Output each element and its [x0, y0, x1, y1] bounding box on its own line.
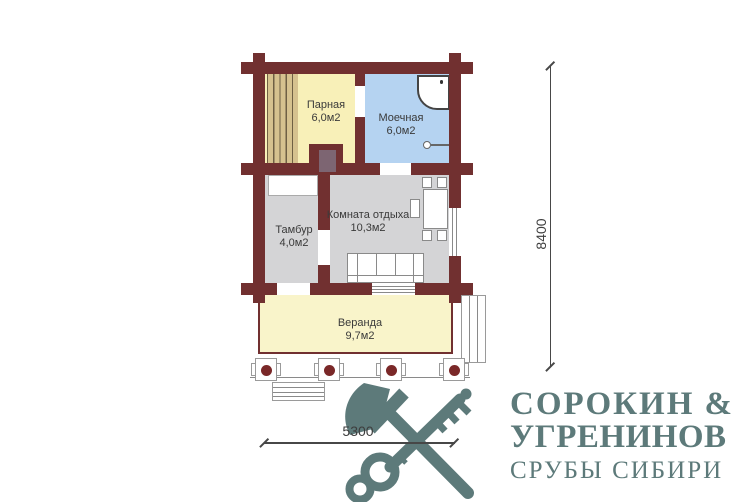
logo-tagline: СРУБЫ СИБИРИ [510, 458, 734, 483]
dimension-label-horizontal: 5300 [328, 423, 388, 439]
chair [437, 230, 447, 241]
faucet-icon [423, 141, 431, 149]
chair [422, 177, 432, 188]
logo-text-block: СОРОКИН & УГРЕНИНОВ СРУБЫ СИБИРИ [510, 389, 734, 483]
logo-name-part1: СОРОКИН [510, 389, 694, 419]
wall-left [253, 53, 265, 303]
door-rest-washing [380, 163, 411, 175]
dimension-label-vertical: 8400 [533, 205, 549, 263]
dimension-line-vertical [550, 65, 552, 367]
chair [422, 230, 432, 241]
window-rest-veranda [372, 283, 415, 295]
room-label-rest: Комната отдыха 10,3м2 [318, 209, 418, 235]
vestibule-bench [268, 175, 318, 196]
room-area: 6,0м2 [286, 112, 366, 125]
door-vestibule-veranda [277, 283, 310, 295]
logo-name-line1: СОРОКИН & [510, 389, 734, 419]
wall-top [241, 62, 473, 74]
faucet-pipe [431, 144, 449, 146]
shower-head-icon [440, 80, 444, 84]
wall-bottom [241, 283, 473, 295]
room-area: 4,0м2 [254, 237, 334, 250]
steps-left [272, 382, 325, 401]
veranda-post [449, 365, 460, 376]
dimension-line-horizontal [264, 442, 455, 444]
room-label-washing: Моечная 6,0м2 [361, 112, 441, 138]
room-name: Комната отдыха [318, 209, 418, 222]
sofa [347, 253, 424, 283]
dining-table [423, 189, 448, 229]
porch-front-line [250, 377, 470, 378]
window-rest-right [449, 208, 461, 256]
room-area: 6,0м2 [361, 125, 441, 138]
room-name: Моечная [361, 112, 441, 125]
veranda-post [324, 365, 335, 376]
room-label-veranda: Веранда 9,7м2 [320, 317, 400, 343]
logo-name-line2: УГРЕНИНОВ [510, 421, 734, 454]
room-area: 10,3м2 [318, 222, 418, 235]
steps-right [461, 295, 486, 363]
floor-plan-page: Парная 6,0м2 Моечная 6,0м2 Тамбур 4,0м2 … [0, 0, 753, 502]
wall-right [449, 53, 461, 303]
stove-door [319, 150, 336, 172]
wall-middle [241, 163, 473, 175]
room-label-steam: Парная 6,0м2 [286, 99, 366, 125]
chair [437, 177, 447, 188]
veranda-post [261, 365, 272, 376]
veranda-post [386, 365, 397, 376]
room-area: 9,7м2 [320, 330, 400, 343]
room-name: Парная [286, 99, 366, 112]
logo-ampersand: & [705, 389, 735, 419]
room-name: Веранда [320, 317, 400, 330]
